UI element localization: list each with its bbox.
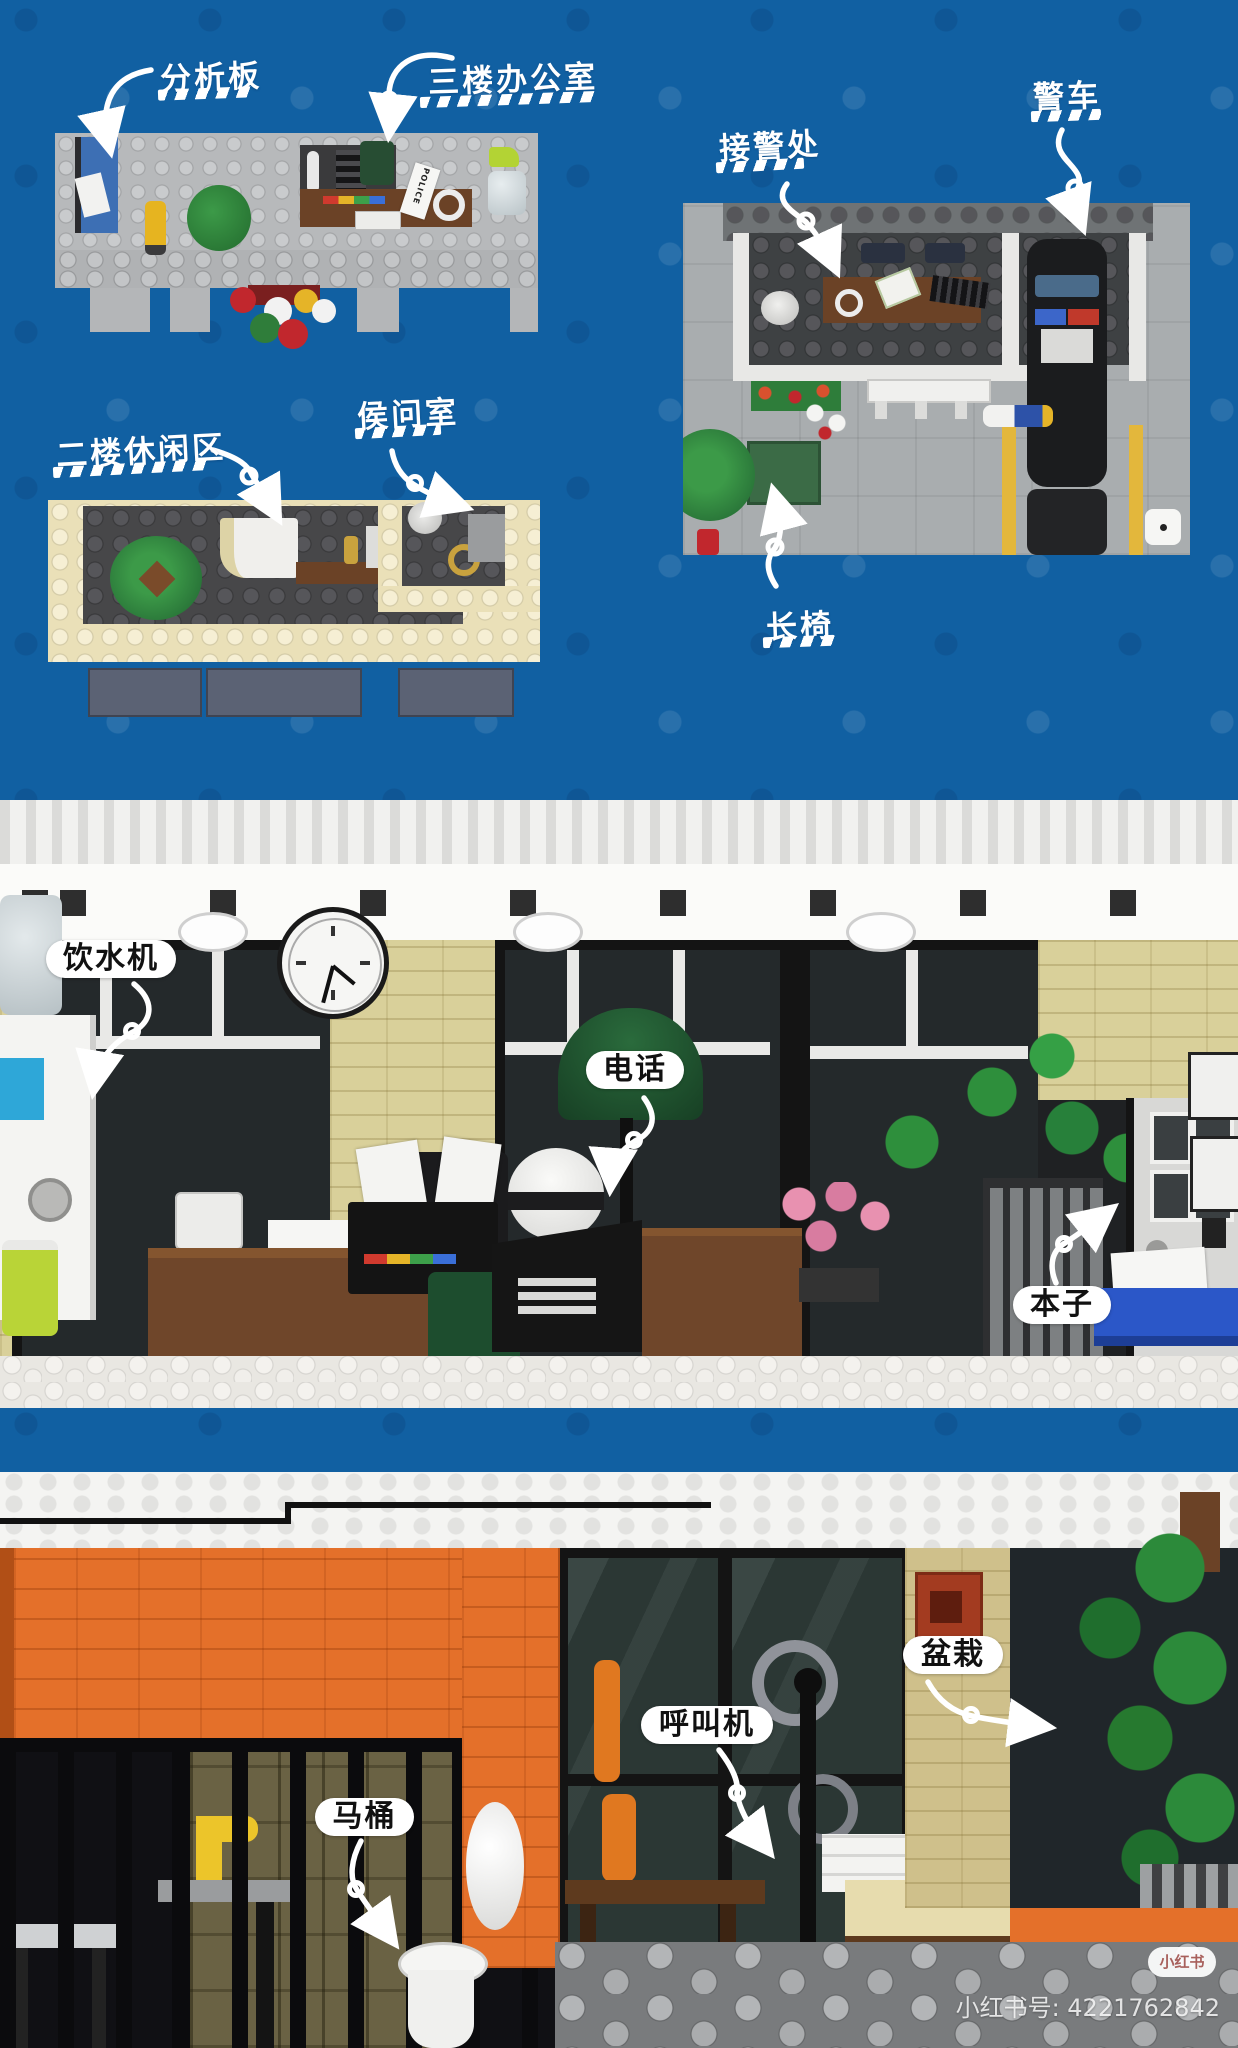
label-intercom: 呼叫机: [641, 1706, 773, 1744]
wall-devices: [1188, 1052, 1238, 1262]
dispenser-dial: [28, 1178, 72, 1222]
plant-top: [683, 429, 755, 521]
orange-curb: [1010, 1908, 1238, 1942]
plant-top: [187, 185, 251, 251]
car-roof-white: [1041, 329, 1093, 363]
xiaohongshu-logo-badge: 小红书: [1148, 1947, 1216, 1977]
chair-dark: [925, 243, 965, 263]
white-drum: [408, 502, 442, 534]
pillar: [357, 288, 399, 332]
minifig-gold: [344, 536, 358, 564]
ceiling-step-line: [291, 1502, 711, 1508]
car-front: [1027, 489, 1107, 555]
bench-legs: [875, 401, 977, 419]
wall-clock: [277, 907, 389, 1019]
yellow-line: [1129, 425, 1143, 555]
skeleton-figure: [803, 403, 855, 443]
flower-box: [230, 285, 338, 349]
ceiling-light: [846, 912, 916, 952]
ceiling-step-line: [0, 1518, 285, 1524]
toilet-tank-lid: [466, 1802, 524, 1930]
label-potted-plant: 盆栽: [903, 1636, 1003, 1674]
magnifier: [433, 189, 465, 221]
dash-underline: [1031, 109, 1101, 122]
dispenser-blue-part: [0, 1058, 44, 1120]
label-notebook: 本子: [1013, 1286, 1111, 1324]
plant-leaves: [862, 1032, 1162, 1188]
tree-foliage: [1020, 1508, 1238, 1908]
window-panel: [88, 668, 202, 717]
toilet-bowl-body: [408, 1970, 474, 2048]
gray-counter: [468, 514, 505, 562]
minifig-yellow: [145, 201, 166, 255]
pillar: [90, 288, 150, 332]
photo-second-floor-plan: [48, 500, 540, 713]
arrow-interrogation-room: [392, 451, 456, 504]
officer-lying: [983, 405, 1053, 427]
yellow-line: [1002, 425, 1016, 555]
ceiling: [0, 800, 1238, 864]
room-wall-v: [378, 500, 402, 592]
police-note-text: POLICE: [411, 167, 431, 206]
chair-dark: [861, 243, 905, 263]
lamp-stem: [620, 1118, 633, 1236]
ceiling-light: [178, 912, 248, 952]
machine-green: [360, 141, 394, 185]
green-crate: [747, 441, 821, 505]
printer-white: [175, 1192, 243, 1250]
car-lightbar-blue: [1035, 309, 1066, 325]
pillar: [510, 288, 538, 332]
photo-third-floor-plan: POLICE: [55, 133, 538, 352]
car-lightbar-red: [1068, 309, 1099, 325]
bench-white: [867, 379, 991, 403]
xiaohongshu-logo-text: 小红书: [1159, 1953, 1204, 1971]
interview-table-top: [565, 1880, 765, 1904]
room-wall-h: [378, 586, 540, 612]
baseplate-edge: [55, 250, 538, 288]
window-panel: [206, 668, 362, 717]
pillar: [170, 288, 210, 332]
photo-jail-interior: 小红书 小红书号: 4221762842: [0, 1472, 1238, 2048]
label-toilet: 马桶: [315, 1798, 414, 1836]
pink-flowers: [775, 1182, 905, 1302]
prisoner-orange-arm: [594, 1660, 620, 1782]
printer-white: [355, 211, 401, 230]
sink-white: [761, 291, 799, 325]
product-annotation-poster: POLICE: [0, 0, 1238, 2048]
arrow-analysis-board: [106, 70, 151, 140]
ceiling-light: [513, 912, 583, 952]
lime-jug: [2, 1240, 58, 1336]
window-panel: [398, 668, 514, 717]
bay-column-white: [1002, 233, 1019, 381]
dash-underline: [763, 635, 835, 649]
blue-shelf: [1094, 1288, 1238, 1346]
car-windshield: [1035, 275, 1099, 297]
floor: [0, 1356, 1238, 1408]
xiaohongshu-id: 小红书号: 4221762842: [930, 1988, 1220, 2023]
hydrant-red: [697, 529, 719, 555]
watering-can: [489, 147, 519, 167]
phone-handset: [307, 151, 319, 193]
label-telephone: 电话: [586, 1051, 684, 1089]
bars-frame: [172, 1738, 188, 2048]
photo-ground-floor-plan: [683, 203, 1190, 555]
magnifier: [835, 289, 863, 317]
label-water-dispenser: 饮水机: [46, 940, 176, 978]
prisoner-orange-arm: [602, 1794, 636, 1882]
bay-column-white: [1129, 233, 1146, 381]
white-sofa: [220, 518, 298, 578]
die-dot: [1160, 524, 1167, 531]
telephone-dome-band: [508, 1192, 604, 1210]
glass-dome: [488, 171, 526, 215]
dash-underline: [158, 86, 252, 100]
desk-strip: [323, 196, 385, 204]
